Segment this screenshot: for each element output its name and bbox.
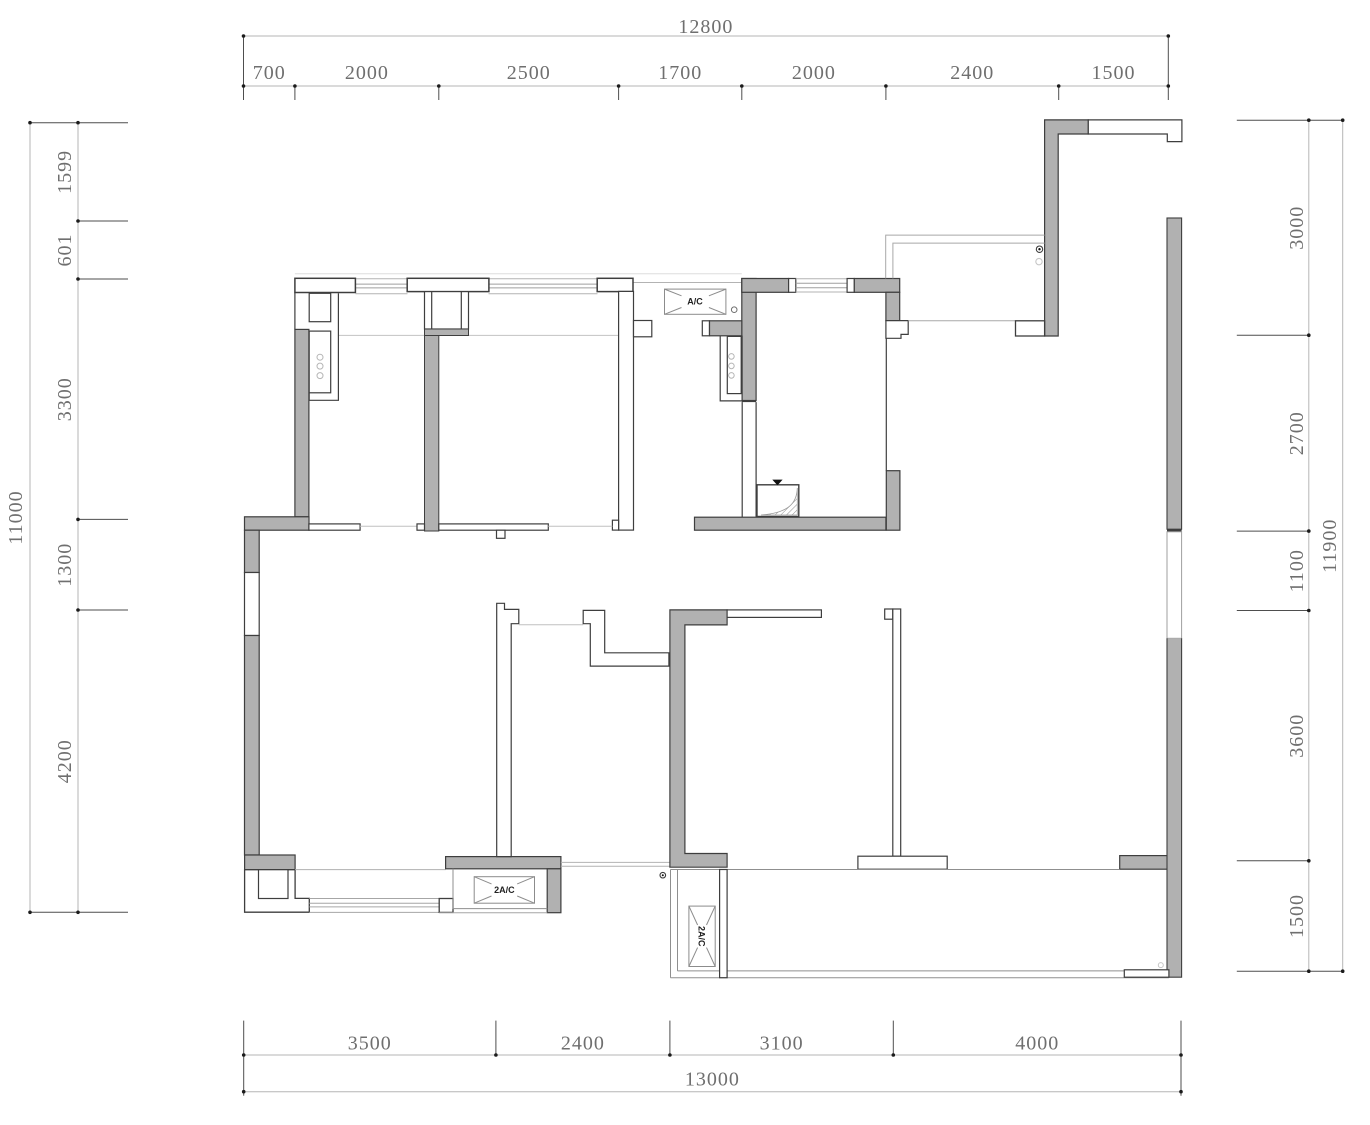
svg-text:2A/C: 2A/C [494, 885, 515, 895]
svg-text:2700: 2700 [1286, 411, 1308, 455]
svg-text:3100: 3100 [760, 1033, 804, 1055]
svg-text:601: 601 [54, 234, 76, 267]
svg-text:A/C: A/C [687, 296, 703, 306]
svg-text:1500: 1500 [1092, 62, 1136, 84]
svg-text:3300: 3300 [54, 377, 76, 421]
svg-text:11000: 11000 [5, 490, 27, 544]
svg-text:2400: 2400 [561, 1033, 605, 1055]
svg-text:700: 700 [253, 62, 286, 84]
svg-text:1100: 1100 [1286, 549, 1308, 592]
svg-text:3500: 3500 [348, 1033, 392, 1055]
svg-text:4000: 4000 [1015, 1033, 1059, 1055]
svg-text:3600: 3600 [1286, 714, 1308, 758]
svg-text:2400: 2400 [950, 62, 994, 84]
svg-text:11900: 11900 [1319, 519, 1341, 573]
svg-text:2000: 2000 [345, 62, 389, 84]
svg-text:12800: 12800 [678, 16, 733, 38]
svg-text:4200: 4200 [54, 739, 76, 783]
svg-text:13000: 13000 [685, 1069, 740, 1091]
svg-text:1500: 1500 [1286, 894, 1308, 938]
svg-text:3000: 3000 [1286, 206, 1308, 250]
svg-text:2000: 2000 [792, 62, 836, 84]
svg-text:1599: 1599 [54, 150, 76, 194]
svg-text:1300: 1300 [54, 543, 76, 587]
svg-text:1700: 1700 [658, 62, 702, 84]
svg-text:2500: 2500 [507, 62, 551, 84]
svg-text:2A/C: 2A/C [697, 926, 707, 947]
